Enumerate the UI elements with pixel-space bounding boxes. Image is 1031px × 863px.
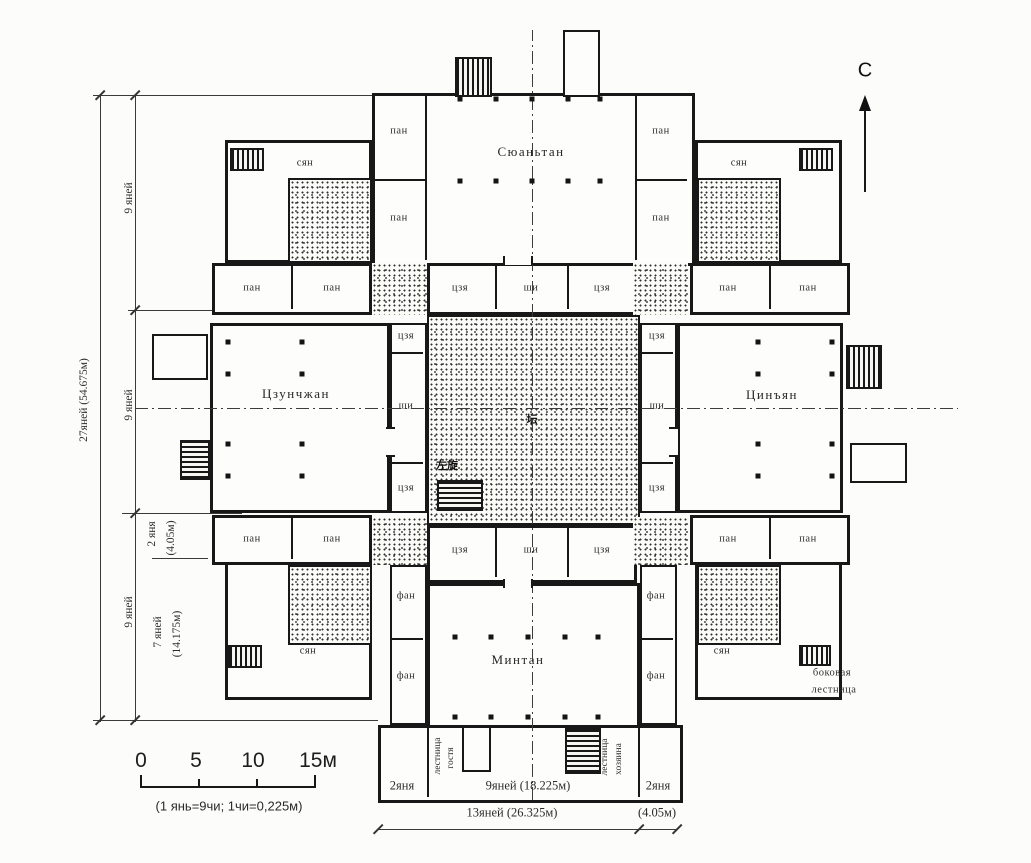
wall bbox=[291, 517, 293, 559]
dim-9yan-bottom: 9яней (18.225м) bbox=[486, 779, 571, 794]
wall bbox=[425, 95, 427, 260]
patio-top-right bbox=[697, 178, 781, 263]
room-label-syan: сян bbox=[731, 158, 748, 169]
north-label: С bbox=[858, 60, 872, 83]
room-label-pan: пан bbox=[243, 534, 260, 545]
patio-top-left bbox=[288, 178, 372, 263]
dim-7yan: 7 яней bbox=[152, 616, 164, 647]
scale-bar-line bbox=[140, 786, 316, 788]
courtyard-stair-hatch bbox=[437, 480, 483, 511]
dim-tick-2-7 bbox=[152, 558, 208, 559]
door-opening bbox=[503, 256, 533, 265]
door-opening bbox=[669, 427, 678, 457]
stipple-gap bbox=[633, 517, 688, 565]
north-arrow-shaft bbox=[864, 110, 866, 192]
dim-7yan-m: (14.175м) bbox=[171, 611, 183, 658]
scale-bar-tick bbox=[140, 775, 142, 788]
column-dot bbox=[756, 372, 761, 377]
dim-line-left-outer bbox=[100, 95, 101, 722]
scale-10: 10 bbox=[241, 749, 264, 773]
column-dot bbox=[566, 97, 571, 102]
side-stair-hatch bbox=[799, 645, 831, 666]
side-stair-label-2: лестница bbox=[812, 685, 857, 696]
stair-hatch bbox=[180, 440, 210, 480]
axis-horizontal bbox=[135, 408, 958, 409]
room-label-syan: сян bbox=[300, 646, 317, 657]
column-dot bbox=[300, 340, 305, 345]
column-dot bbox=[563, 635, 568, 640]
dim-9yan-mid: 9 яней bbox=[123, 389, 135, 420]
room-label-pan: пан bbox=[799, 283, 816, 294]
wall bbox=[392, 352, 423, 354]
room-label-shi: ши bbox=[524, 283, 539, 294]
wall bbox=[635, 95, 637, 260]
room-label-jia: цзя bbox=[649, 331, 665, 342]
wall bbox=[495, 265, 497, 309]
guest-stair-label-2: гостя bbox=[446, 747, 456, 768]
room-label-fang: фан bbox=[397, 671, 416, 682]
wall bbox=[374, 179, 426, 181]
wall bbox=[769, 517, 771, 559]
east-annex bbox=[850, 443, 907, 483]
dim-line-bottom bbox=[378, 829, 677, 830]
room-label-shi: ши bbox=[524, 545, 539, 556]
guest-stair-label-1: лестница bbox=[433, 737, 443, 774]
room-label-pan: пан bbox=[243, 283, 260, 294]
room-label-jia: цзя bbox=[398, 483, 414, 494]
column-dot bbox=[756, 340, 761, 345]
column-dot bbox=[226, 442, 231, 447]
wall bbox=[392, 638, 423, 640]
fang-column-west bbox=[390, 565, 427, 725]
patio-bottom-right bbox=[697, 565, 781, 645]
column-dot bbox=[756, 442, 761, 447]
courtyard-stair-mark: 左旋 bbox=[436, 457, 458, 473]
dim-9yan-top: 9 яней bbox=[123, 182, 135, 213]
side-stair-label-1: боковая bbox=[813, 668, 851, 679]
host-stair-label-2: хозяина bbox=[614, 743, 624, 775]
north-arrow-icon bbox=[859, 95, 871, 111]
scale-15: 15м bbox=[299, 749, 337, 773]
room-label-fang: фан bbox=[647, 591, 666, 602]
room-label-syan: сян bbox=[297, 158, 314, 169]
scale-bar-tick bbox=[314, 775, 316, 788]
patio-bottom-left bbox=[288, 565, 372, 645]
column-dot bbox=[300, 442, 305, 447]
dim-2yan-m: (4.05м) bbox=[165, 520, 177, 555]
wall bbox=[392, 462, 423, 464]
stipple-gap bbox=[372, 263, 427, 315]
scale-bar-tick bbox=[198, 779, 200, 788]
column-dot bbox=[530, 179, 535, 184]
room-label-pan: пан bbox=[323, 534, 340, 545]
dim-tick-9b bbox=[122, 513, 242, 514]
column-dot bbox=[458, 97, 463, 102]
wall bbox=[495, 527, 497, 577]
dim-total-left: 27яней (54.675м) bbox=[78, 358, 90, 442]
room-label-pan: пан bbox=[390, 126, 407, 137]
wall bbox=[642, 352, 673, 354]
fang-column-east bbox=[640, 565, 677, 725]
stipple-gap bbox=[633, 263, 688, 315]
axis-vertical bbox=[532, 30, 533, 800]
host-stair-hatch bbox=[565, 728, 601, 774]
dim-2yan-bottom-right: 2яня bbox=[646, 779, 670, 794]
column-dot bbox=[226, 474, 231, 479]
room-label-jia: цзя bbox=[649, 483, 665, 494]
column-dot bbox=[596, 635, 601, 640]
dim-2yan-bottom-left: 2яня bbox=[390, 779, 414, 794]
wall bbox=[291, 265, 293, 309]
south-hall-label: Минтан bbox=[491, 652, 544, 668]
column-dot bbox=[458, 179, 463, 184]
wall bbox=[567, 527, 569, 577]
wall bbox=[642, 638, 673, 640]
wall bbox=[636, 179, 687, 181]
stair-hatch bbox=[846, 345, 882, 389]
stair-hatch bbox=[799, 148, 833, 171]
dim-405m: (4.05м) bbox=[638, 806, 676, 821]
room-label-pan: пан bbox=[390, 213, 407, 224]
room-label-shi: ши bbox=[399, 401, 414, 412]
west-hall-label: Цзунчжан bbox=[262, 386, 330, 402]
room-label-jia: цзя bbox=[452, 283, 468, 294]
floor-plan: 27яней (54.675м) 9 яней 9 яней 9 яней 2 … bbox=[0, 0, 1031, 863]
wall bbox=[567, 265, 569, 309]
host-stair-label-1: лестница bbox=[600, 738, 610, 775]
column-dot bbox=[300, 372, 305, 377]
room-label-jia: цзя bbox=[594, 545, 610, 556]
stipple-gap bbox=[372, 517, 427, 565]
wall bbox=[427, 727, 429, 797]
column-dot bbox=[489, 715, 494, 720]
guest-stair-rail bbox=[462, 770, 491, 772]
room-label-pan: пан bbox=[799, 534, 816, 545]
column-dot bbox=[226, 340, 231, 345]
room-label-pan: пан bbox=[719, 283, 736, 294]
wall bbox=[769, 265, 771, 309]
stair-hatch bbox=[230, 148, 264, 171]
room-label-shi: ши bbox=[650, 401, 665, 412]
column-dot bbox=[566, 179, 571, 184]
column-dot bbox=[830, 474, 835, 479]
scale-0: 0 bbox=[135, 749, 147, 773]
scale-note: (1 янь=9чи; 1чи=0,225м) bbox=[156, 799, 303, 814]
roof-opening bbox=[563, 30, 600, 97]
room-label-jia: цзя bbox=[594, 283, 610, 294]
column-dot bbox=[453, 635, 458, 640]
room-label-pan: пан bbox=[719, 534, 736, 545]
column-dot bbox=[598, 97, 603, 102]
dim-tick-9a bbox=[128, 310, 214, 311]
east-hall-label: Цинъян bbox=[746, 387, 798, 403]
scale-bar-tick bbox=[256, 779, 258, 788]
wall bbox=[642, 462, 673, 464]
room-label-syan: сян bbox=[714, 646, 731, 657]
door-opening bbox=[386, 427, 395, 457]
room-label-jia: цзя bbox=[452, 545, 468, 556]
column-dot bbox=[226, 372, 231, 377]
column-dot bbox=[830, 372, 835, 377]
west-hall-block bbox=[210, 323, 390, 513]
scale-5: 5 bbox=[190, 749, 202, 773]
west-annex bbox=[152, 334, 208, 380]
room-label-pan: пан bbox=[652, 213, 669, 224]
column-dot bbox=[563, 715, 568, 720]
column-dot bbox=[489, 635, 494, 640]
dim-13yan-total: 13яней (26.325м) bbox=[467, 806, 558, 821]
column-dot bbox=[494, 179, 499, 184]
stair-hatch bbox=[228, 645, 262, 668]
column-dot bbox=[530, 97, 535, 102]
dim-2yan: 2 яня bbox=[146, 521, 158, 546]
column-dot bbox=[494, 97, 499, 102]
column-dot bbox=[300, 474, 305, 479]
stair-hatch-top bbox=[455, 57, 492, 97]
column-dot bbox=[596, 715, 601, 720]
column-dot bbox=[526, 635, 531, 640]
column-dot bbox=[756, 474, 761, 479]
room-label-fang: фан bbox=[647, 671, 666, 682]
room-label-pan: пан bbox=[323, 283, 340, 294]
door-opening bbox=[503, 579, 533, 588]
dim-9yan-bot: 9 яней bbox=[123, 596, 135, 627]
room-label-jia: цзя bbox=[398, 331, 414, 342]
guest-stair-rail bbox=[489, 728, 491, 772]
column-dot bbox=[526, 715, 531, 720]
column-dot bbox=[830, 340, 835, 345]
guest-stair-rail bbox=[462, 728, 464, 772]
column-dot bbox=[453, 715, 458, 720]
north-hall-label: Сюаньтан bbox=[497, 144, 564, 160]
wall bbox=[638, 727, 640, 797]
east-hall-block bbox=[677, 323, 843, 513]
room-label-fang: фан bbox=[397, 591, 416, 602]
room-label-pan: пан bbox=[652, 126, 669, 137]
column-dot bbox=[830, 442, 835, 447]
column-dot bbox=[598, 179, 603, 184]
